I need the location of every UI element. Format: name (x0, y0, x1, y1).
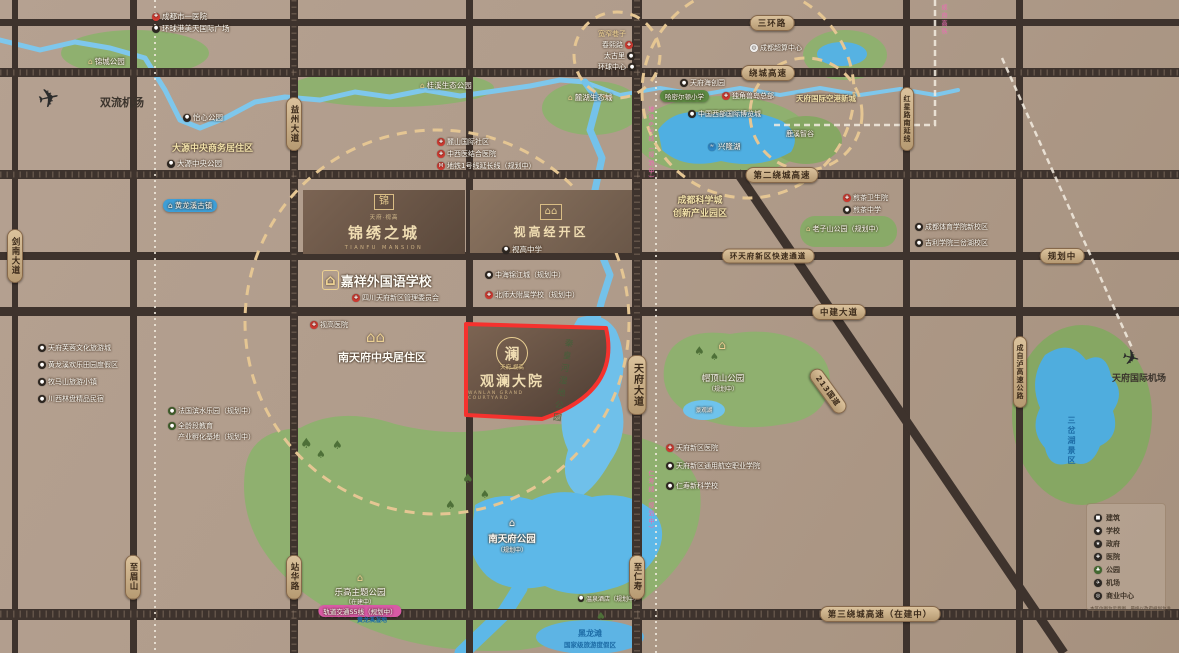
banner-zhongjian: 中建大道 (812, 304, 866, 320)
tree-icon: ♠ (710, 352, 719, 363)
banner-yizhou: 益州大道 (286, 97, 302, 151)
banner-tianfu: 天府大道 (628, 355, 647, 415)
tree-icon: ♠ (480, 488, 490, 501)
hotel-icon: ● (578, 596, 584, 602)
poi-lushan: ✚麓山国际社区 (437, 137, 489, 147)
ntf-park-icon: ⌂ (509, 518, 515, 529)
airport-legend-icon: ✈ (1094, 579, 1102, 587)
park-legend-icon: ♣ (1094, 566, 1102, 574)
poi-shigao-hospital: ✚视高医院 (310, 320, 348, 330)
residence-icon: ● (485, 271, 493, 279)
renshou-line-label: 仁寿线（规划中） (646, 470, 655, 534)
poi-kuanzhai: 宽窄巷子 (598, 29, 626, 39)
poi-supercomputing: ○成都超算中心 (750, 43, 802, 53)
park-dot-icon: ● (167, 160, 175, 168)
tianfu-airport-label: 天府国际机场 (1112, 371, 1166, 384)
shigao-school: ●视高医院视高中学 (502, 244, 542, 255)
poi-aviation-college: ●天府新区通用航空职业学院 (666, 461, 760, 471)
poi-huanqiu-center: 环球中心● (598, 62, 636, 72)
poi-jincheng-park: ⌂锦城公园 (88, 56, 125, 67)
jinxiu-name: 锦绣之城 (348, 222, 420, 243)
maoding-pagoda-icon: ⌂ (718, 338, 726, 352)
poi-metro1: M地铁1号线延长线（规划中） (437, 161, 535, 171)
expo-icon: ● (688, 110, 696, 118)
hq-icon: ✚ (722, 92, 730, 100)
poi-fz3: ●牧马山旅游小镇 (38, 377, 97, 387)
poi-fr3: 产业孵化基地（规划中） (178, 432, 255, 442)
wanlan-english: WANLAN GRAND COURTYARD (468, 391, 556, 401)
building-legend-icon: ■ (1094, 514, 1102, 522)
hospital-icon: ✚ (666, 444, 674, 452)
banner-raocheng: 绕城高速 (741, 65, 795, 81)
resort-icon: ● (38, 361, 46, 369)
resort-icon: ● (38, 395, 46, 403)
wanlan-title: 天府·视高 观澜大院 WANLAN GRAND COURTYARD (468, 363, 556, 401)
banner-disan-raocheng: 第三绕城高速（在建中） (820, 606, 941, 622)
poi-luhu-city: ⌂麓湖生态城 (568, 92, 612, 103)
education-icon: ● (168, 422, 176, 430)
poi-jiancha-clinic: ✚煎茶卫生院 (843, 193, 888, 203)
mall-legend-icon: ◎ (1094, 592, 1102, 600)
tree-icon: ♠ (694, 344, 705, 358)
location-map: 锦 天府·视高 锦绣之城 TIANFU MANSION ⌂⌂ 视高经开区 ●视高… (0, 0, 1179, 653)
poi-fr1: ●法国滨水乐园（规划中） (168, 406, 255, 416)
poi-nantianfu-area: 南天府中央居住区 (338, 349, 426, 365)
legend-item: ■建筑 (1094, 513, 1158, 523)
poi-dayuan-park: ●大源中央公园 (167, 158, 222, 169)
poi-ntf-park: 南天府公园 (488, 531, 536, 545)
banner-dier-raocheng: 第二绕城高速 (745, 167, 818, 183)
school-icon: ● (666, 482, 674, 490)
poi-expo-city: ●中国西部国际博览城 (688, 109, 761, 119)
banner-zhirenshou: 至仁寿 (629, 555, 645, 600)
tree-icon: ♠ (332, 438, 343, 452)
chengzi-hsr-label: 成自高铁 (939, 4, 948, 36)
poi-xinke-school: ●仁寿新科学校 (666, 481, 718, 491)
tree-icon: ♠ (300, 436, 313, 452)
poi-heilongtan-sub: 国家级旅游度假区 (564, 639, 616, 649)
legend-item: ♣公园 (1094, 565, 1158, 575)
poi-guixi-park: ⌂桂溪生态公园 (420, 80, 472, 91)
banner-guihuazhong: 规划中 (1040, 248, 1085, 264)
poi-heilongtan: 黑龙滩 (578, 628, 602, 639)
jinxiu-card: 锦 天府·视高 锦绣之城 TIANFU MANSION (303, 190, 465, 254)
tree-icon: ♠ (462, 472, 474, 487)
map-legend: ■建筑 ◆学校 ★政府 ✚医院 ♣公园 ✈机场 ◎商业中心 (1086, 503, 1166, 611)
poi-haichuang: ●天府海创园 (680, 78, 725, 88)
government-legend-icon: ★ (1094, 540, 1102, 548)
community-icon: ✚ (437, 138, 445, 146)
poi-sport-college: ●成都体育学院新校区 (915, 222, 988, 232)
poi-fz4: ●川西林盘精品民宿 (38, 394, 104, 404)
town-icon: ⌂ (168, 201, 173, 210)
shuangliu-airport-label: 双流机场 (100, 94, 144, 110)
jinxiu-prefix: 天府·视高 (370, 213, 399, 221)
jinxiu-english: TIANFU MANSION (345, 245, 424, 251)
building-icon: ● (152, 25, 160, 33)
tree-icon: ♠ (596, 610, 606, 623)
landmark-icon: ● (627, 52, 635, 60)
poi-laozishan: ⌂老子山公园（规划中） (806, 224, 882, 234)
poi-huanglongxi: ⌂黄龙溪古镇 (163, 199, 217, 212)
leisure-icon: ● (168, 407, 176, 415)
shigao-card: ⌂⌂ 视高经开区 (470, 190, 632, 253)
school-badge-icon: ⌂ (322, 270, 339, 290)
poi-ntf-sub: （规划中） (497, 545, 527, 554)
legend-item: ✚医院 (1094, 552, 1158, 562)
jinxiu-logo: 锦 (374, 194, 394, 210)
lego-icon: ⌂ (357, 573, 363, 584)
lake-icon: ≈ (708, 143, 716, 151)
center-icon: ○ (750, 44, 758, 52)
banner-hongxing: 红星路南延线 (900, 87, 914, 151)
building-icon: ● (680, 79, 688, 87)
poi-zhonghai: ●中海锦江城（规划中） (485, 270, 565, 280)
resort-icon: ● (38, 378, 46, 386)
poi-reservoir: 景观湖 (696, 406, 713, 414)
legend-item: ✈机场 (1094, 578, 1158, 588)
pagoda-icon: ⌂ (806, 225, 810, 233)
school-icon: ✚ (485, 291, 493, 299)
banner-huantianfu: 环天府新区快速通道 (722, 249, 815, 264)
college-icon: ● (915, 223, 923, 231)
poi-yixin-park: ●怡心公园 (183, 112, 223, 123)
resort-icon: ● (38, 344, 46, 352)
poi-tf-hospital: ✚天府新区医院 (666, 443, 718, 453)
banner-zhimeishan: 至眉山 (125, 555, 141, 600)
legend-item: ◆学校 (1094, 526, 1158, 536)
wanlan-prefix: 天府·视高 (500, 363, 524, 371)
poi-hamilton: 哈密尔顿小学 (660, 90, 709, 102)
gov-icon: ✚ (352, 294, 360, 302)
park-icon: ⌂ (88, 57, 93, 66)
landmark-icon: ✚ (625, 41, 633, 49)
poi-maoding-sub: （规划中） (708, 384, 738, 393)
poi-unicorn: ✚独角兽岛总部 (722, 91, 774, 101)
poi-fr2: ●全龄段教育 (168, 421, 213, 431)
tree-icon: ♠ (316, 448, 326, 461)
park-icon: ⌂ (420, 81, 425, 90)
poi-chunxi: 春熙路✚ (602, 40, 633, 50)
hospital-icon: ✚ (152, 13, 160, 21)
banner-zhanhua: 站华路 (286, 555, 302, 600)
poi-taiguli: 太古里● (604, 51, 635, 61)
park-dot-icon: ● (183, 114, 191, 122)
poi-science-city-line2: 创新产业园区 (673, 206, 727, 219)
poi-science-city-line1: 成都科学城 (677, 193, 722, 206)
legend-item: ◎商业中心 (1094, 591, 1158, 601)
banner-sanhuanlu: 三环路 (750, 15, 795, 31)
poi-huanqiu-plaza: ●环球港美天国际广场 (152, 23, 230, 34)
poi-jiancha-school: ●煎茶中学 (843, 205, 881, 215)
poi-fz2: ●黄龙溪欢乐田园度假区 (38, 360, 118, 370)
poi-xinglong-lake: ≈兴隆湖 (708, 141, 741, 152)
college-icon: ● (666, 462, 674, 470)
poi-bnu-school: ✚北师大附属学校（规划中） (485, 290, 579, 300)
poi-hospital-tcm: ✚中西医结合医院 (437, 149, 496, 159)
poi-jiaxiang-sub: ✚四川天府新区管理委员会 (352, 293, 439, 303)
tree-icon: ♠ (445, 498, 456, 512)
landmark-icon: ● (628, 63, 636, 71)
college-icon: ● (915, 239, 923, 247)
school-legend-icon: ◆ (1094, 527, 1102, 535)
metro6-label: 地铁6号线（规划中） (646, 106, 655, 184)
banner-chengzilu: 成自泸高速公路 (1013, 336, 1027, 408)
shigao-building-icon: ⌂⌂ (540, 204, 563, 220)
poi-geely: ●吉利学院三岔湖校区 (915, 238, 988, 248)
park-icon: ⌂ (568, 93, 573, 102)
nantianfu-building-icon: ⌂⌂ (366, 328, 385, 346)
poi-dayuan-cbd: 大源中央商务居住区 (172, 141, 253, 154)
shigao-name: 视高经开区 (513, 223, 588, 240)
wanlan-name: 观澜大院 (480, 371, 544, 391)
poi-lego-blue: 黄龙溪湿地 (357, 615, 387, 624)
map-disclaimer: 本区位图为示意图，最终以政府规划为准 (1090, 606, 1171, 612)
metro-icon: M (437, 162, 445, 170)
clinic-icon: ✚ (843, 194, 851, 202)
school-icon: ● (843, 206, 851, 214)
hospital-legend-icon: ✚ (1094, 553, 1102, 561)
poi-fz1: ●天府芙蓉文化旅游城 (38, 343, 111, 353)
hospital-icon: ✚ (310, 321, 318, 329)
poi-sancha-lake: 三岔湖景区 (1066, 416, 1077, 466)
poi-konggang: 天府国际空港新城 (796, 93, 856, 104)
poi-luxi: 鹿溪智谷 (786, 129, 814, 139)
hospital-icon: ✚ (437, 150, 445, 158)
poi-maoding: 帽顶山公园 (702, 372, 745, 384)
school-icon: ● (502, 246, 510, 254)
poi-chengdu-hospital: ✚成都市一医院 (152, 11, 207, 22)
poi-jiaxiang: ⌂嘉祥外国语学校 (322, 270, 432, 290)
banner-jiannan: 剑南大道 (7, 229, 23, 283)
legend-item: ★政府 (1094, 539, 1158, 549)
